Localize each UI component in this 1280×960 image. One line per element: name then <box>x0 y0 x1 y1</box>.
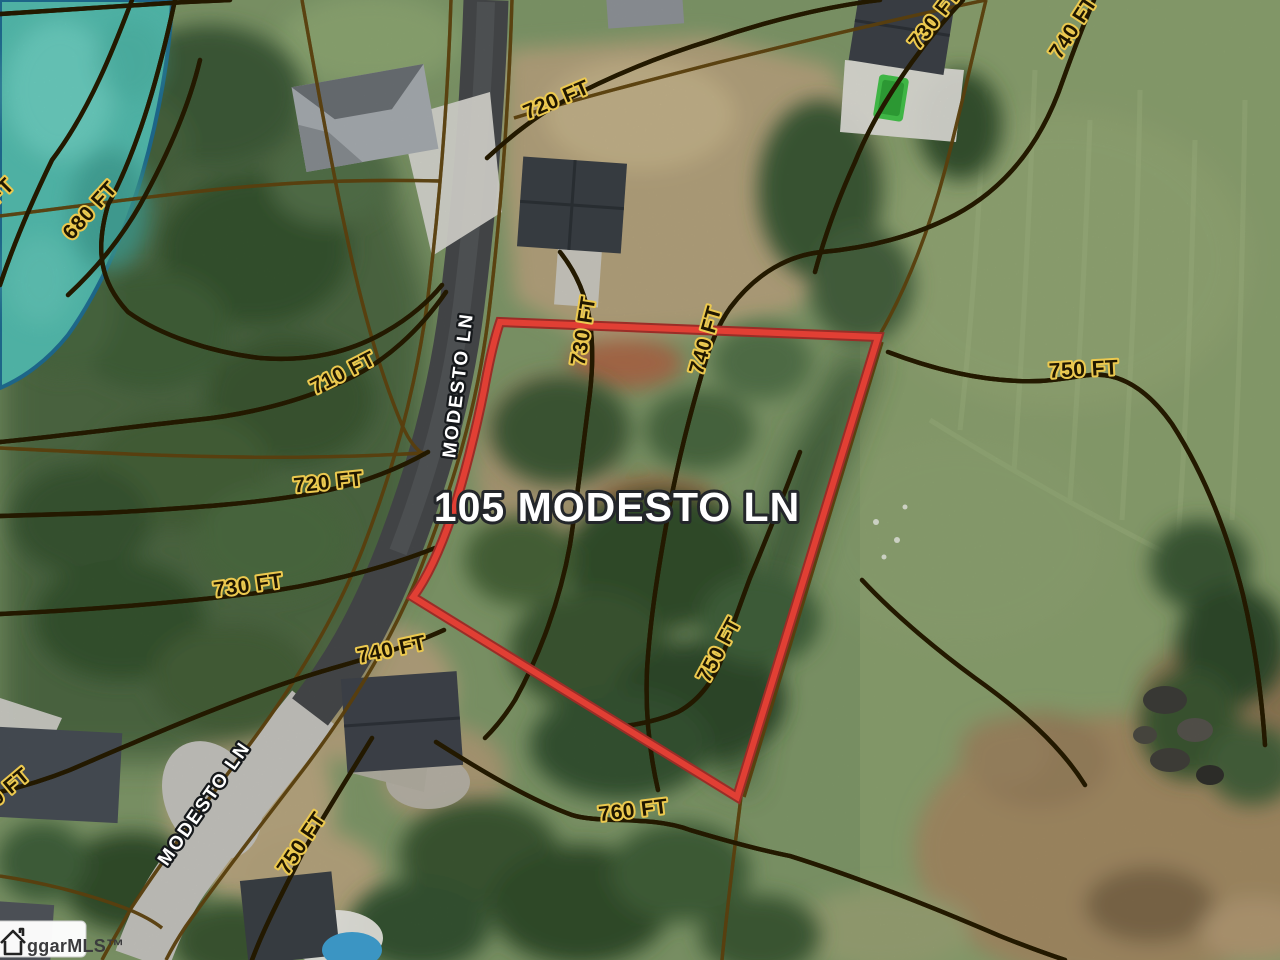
map-canvas[interactable]: 680 FT FT 710 FT 720 FT 730 FT 740 FT 0 … <box>0 0 1280 960</box>
aerial-map-image: 680 FT FT 710 FT 720 FT 730 FT 740 FT 0 … <box>0 0 1280 960</box>
watermark-text: ggarMLS™ <box>27 936 124 956</box>
contour-label: 750 FT <box>1048 356 1119 383</box>
parcel-address-label: 105 MODESTO LN <box>434 484 800 530</box>
